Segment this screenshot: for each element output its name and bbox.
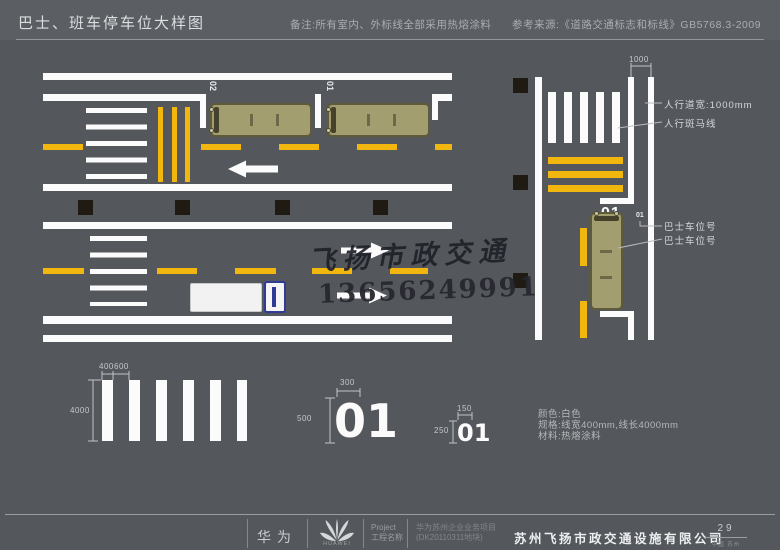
median-marker bbox=[373, 200, 388, 215]
bay-top-line bbox=[43, 94, 200, 101]
annotation-zebra: 人行斑马线 bbox=[664, 116, 717, 130]
annotation-bay-number: 巴士车位号 bbox=[664, 219, 717, 233]
bus-mirror bbox=[594, 211, 599, 216]
road-edge-line bbox=[43, 316, 452, 324]
lane-dash bbox=[201, 144, 241, 150]
bay-separator bbox=[315, 94, 321, 128]
footer-divider bbox=[407, 519, 408, 548]
bus-roof-hatch bbox=[600, 250, 612, 253]
location-label: 中国 苏州 bbox=[705, 540, 747, 548]
page-number: 29 bbox=[706, 523, 746, 534]
truck-cargo-box bbox=[190, 283, 262, 312]
road-edge-line bbox=[43, 73, 452, 80]
bay-top-line bbox=[600, 198, 634, 204]
project-value: 华为苏州企业业务项目 (DK20110311地块) bbox=[416, 523, 496, 543]
dim-bar-gap: 600 bbox=[114, 362, 129, 371]
huawei-logo-text: HUAWEI bbox=[318, 541, 356, 547]
bus-windshield bbox=[594, 216, 619, 221]
lane-dash bbox=[580, 301, 587, 338]
lane-dash bbox=[580, 228, 587, 266]
bus-roof-hatch bbox=[600, 276, 612, 279]
bay-separator bbox=[432, 94, 438, 120]
yellow-grid-line bbox=[548, 185, 623, 192]
bus-mirror bbox=[209, 107, 214, 112]
bus-roof-hatch bbox=[393, 114, 396, 126]
sidewalk-line bbox=[628, 77, 634, 203]
project-label-en: Project bbox=[371, 523, 403, 533]
road-edge-line bbox=[43, 335, 452, 342]
dim-number-height: 500 bbox=[297, 414, 312, 423]
bus-top-view bbox=[210, 103, 312, 137]
dimension-lines-1000 bbox=[631, 63, 651, 77]
bus-windshield bbox=[331, 107, 336, 133]
yellow-grid-line bbox=[185, 107, 190, 182]
bus-roof-hatch bbox=[276, 114, 279, 126]
project-label-cn: 工程名称 bbox=[371, 533, 403, 543]
footer-rule bbox=[5, 514, 775, 515]
yellow-grid-line bbox=[172, 107, 177, 182]
space-number-large: 01 bbox=[334, 398, 398, 444]
project-code: (DK20110311地块) bbox=[416, 533, 496, 543]
watermark-name: 飞扬市政交通 bbox=[307, 229, 513, 279]
leader-lines bbox=[618, 103, 662, 248]
bay-bottom-line bbox=[600, 311, 634, 317]
sidewalk-outer-line bbox=[648, 77, 654, 340]
note-color: 颜色:白色 bbox=[538, 409, 678, 420]
dim-number-height: 250 bbox=[434, 426, 449, 435]
bus-mirror bbox=[614, 211, 619, 216]
lane-dash bbox=[43, 268, 84, 274]
bus-top-view bbox=[590, 212, 623, 310]
lane-dash bbox=[279, 144, 319, 150]
watermark-phone: 13656249991 bbox=[318, 272, 540, 310]
footer-divider bbox=[363, 519, 364, 548]
project-name: 华为苏州企业业务项目 bbox=[416, 523, 496, 533]
huawei-logo bbox=[320, 519, 354, 541]
median-marker bbox=[275, 200, 290, 215]
annotation-bay-number: 巴士车位号 bbox=[664, 233, 717, 247]
truck-windshield bbox=[272, 287, 276, 307]
crosswalk bbox=[548, 92, 620, 143]
median-marker bbox=[175, 200, 190, 215]
truck-cab bbox=[264, 281, 286, 313]
median-marker bbox=[513, 78, 528, 93]
note-material: 材料:热熔涂料 bbox=[538, 431, 678, 442]
annotation-sidewalk-width: 人行道宽:1000mm bbox=[664, 97, 753, 111]
dim-number-width: 300 bbox=[340, 378, 355, 387]
lane-dash bbox=[357, 144, 397, 150]
lane-dash bbox=[235, 268, 276, 274]
note-spec: 规格:线宽400mm,线长4000mm bbox=[538, 420, 678, 431]
yellow-grid-line bbox=[548, 157, 623, 164]
reference-source: 参考来源:《道路交通标志和标线》GB5768.3-2009 bbox=[512, 17, 761, 32]
spec-notes: 颜色:白色 规格:线宽400mm,线长4000mm 材料:热熔涂料 bbox=[538, 409, 678, 442]
dim-sidewalk-width: 1000 bbox=[629, 55, 649, 64]
space-number-small: 01 bbox=[457, 421, 490, 445]
footer-divider bbox=[307, 519, 308, 548]
median-marker bbox=[78, 200, 93, 215]
yellow-grid-line bbox=[158, 107, 163, 182]
lane-dash bbox=[435, 144, 452, 150]
bay-separator bbox=[200, 94, 206, 128]
bus-mirror bbox=[326, 107, 331, 112]
drawing-sheet: 巴士、班车停车位大样图 备注:所有室内、外标线全部采用热熔涂料 参考来源:《道路… bbox=[0, 0, 780, 550]
bus-windshield bbox=[214, 107, 219, 133]
bay-number-small: 01 bbox=[636, 212, 644, 219]
company-name: 苏州飞扬市政交通设施有限公司 bbox=[514, 528, 724, 547]
bay-number-label: 01 bbox=[325, 81, 335, 91]
crosswalk bbox=[86, 108, 147, 180]
bus-mirror bbox=[326, 128, 331, 133]
bus-top-view bbox=[327, 103, 430, 137]
median-marker bbox=[513, 175, 528, 190]
bay-number-label: 02 bbox=[208, 81, 218, 91]
brand-name: 华为 bbox=[257, 527, 297, 547]
lane-dash bbox=[43, 144, 83, 150]
header-rule bbox=[16, 39, 764, 40]
median-line bbox=[43, 222, 452, 229]
bus-roof-hatch bbox=[250, 114, 253, 126]
project-label: Project 工程名称 bbox=[371, 523, 403, 543]
yellow-grid-line bbox=[548, 171, 623, 178]
sheet-note: 备注:所有室内、外标线全部采用热熔涂料 bbox=[290, 17, 491, 32]
bus-mirror bbox=[209, 128, 214, 133]
footer-divider bbox=[247, 519, 248, 548]
dim-bar-length: 4000 bbox=[70, 406, 90, 415]
median-line bbox=[43, 184, 452, 191]
dim-number-width: 150 bbox=[457, 404, 472, 413]
page-number-rule bbox=[705, 537, 747, 538]
bus-roof-hatch bbox=[367, 114, 370, 126]
crosswalk bbox=[90, 236, 147, 306]
sheet-title: 巴士、班车停车位大样图 bbox=[18, 12, 205, 33]
dim-bar-width: 400 bbox=[99, 362, 114, 371]
left-arrow-marking bbox=[228, 161, 278, 178]
zebra-detail bbox=[102, 380, 247, 441]
lane-dash bbox=[157, 268, 197, 274]
